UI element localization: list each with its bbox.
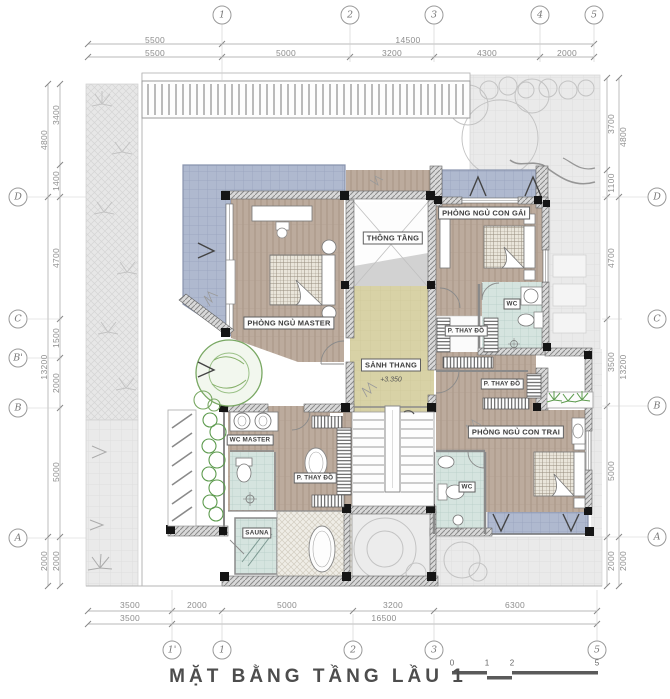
dim: 3700 xyxy=(606,114,616,134)
dim: 3500 xyxy=(606,352,616,372)
dim: 3200 xyxy=(383,600,403,610)
plan-drawing xyxy=(0,0,670,699)
room-label-dress-son: P. THAY ĐỒ xyxy=(481,379,524,390)
room-label-son: PHÒNG NGỦ CON TRAI xyxy=(468,426,564,439)
room-label-dress-daughter: P. THAY ĐỒ xyxy=(445,326,488,337)
dim: 16500 xyxy=(371,613,396,623)
dim: 3500 xyxy=(120,600,140,610)
grid-bubble-top-4: 4 xyxy=(531,6,550,25)
dim: 4800 xyxy=(39,130,49,150)
scale-tick-1: 1 xyxy=(485,659,489,668)
dim: 5000 xyxy=(606,461,616,481)
grid-bubble-right-A: A xyxy=(648,528,667,547)
room-label-wc-master: WC MASTER xyxy=(227,435,274,446)
room-label-sauna: SAUNA xyxy=(242,528,271,539)
courtyard-tree xyxy=(194,340,262,411)
room-label-wc-daughter: WC xyxy=(504,299,521,310)
dim: 5500 xyxy=(145,35,165,45)
room-label-wc-son: WC xyxy=(459,482,476,493)
grid-bubble-left-A: A xyxy=(9,529,28,548)
grid-bubble-left-D: D xyxy=(9,188,28,207)
dim: 2000 xyxy=(51,373,61,393)
sauna-floor xyxy=(235,518,277,574)
dim: 2000 xyxy=(51,551,61,571)
room-label-hall: SẢNH THANG xyxy=(361,359,421,372)
dim: 13200 xyxy=(618,354,628,379)
dim: 2000 xyxy=(187,600,207,610)
grid-bubble-bottom-5: 5 xyxy=(588,641,607,660)
grid-bubble-left-C: C xyxy=(9,310,28,329)
room-label-daughter: PHÒNG NGỦ CON GÁI xyxy=(438,207,530,220)
grid-bubble-top-2: 2 xyxy=(341,6,360,25)
dim: 14500 xyxy=(395,35,420,45)
louver-screen xyxy=(168,410,196,526)
scale-tick-0: 0 xyxy=(450,659,454,668)
dim: 5000 xyxy=(51,462,61,482)
grid-bubble-bottom-3: 3 xyxy=(425,641,444,660)
daughter-balcony xyxy=(442,170,536,201)
grid-bubble-right-D: D xyxy=(648,188,667,207)
master-desk xyxy=(252,206,312,221)
daughter-desk xyxy=(440,218,450,268)
grid-bubble-top-1: 1 xyxy=(213,6,232,25)
room-label-dress-master: P. THAY ĐỒ xyxy=(294,473,337,484)
dim: 2000 xyxy=(39,551,49,571)
grid-bubble-bottom-2: 2 xyxy=(344,641,363,660)
dim: 1100 xyxy=(606,173,616,192)
drawing-title: MẶT BẰNG TẦNG LẦU 1 xyxy=(169,666,467,688)
room-label-void: THÔNG TẦNG xyxy=(363,232,423,245)
scale-bar xyxy=(452,671,598,680)
right-planter xyxy=(547,391,593,408)
grid-bubble-top-5: 5 xyxy=(585,6,604,25)
room-label-master: PHÒNG NGỦ MASTER xyxy=(243,317,334,330)
dim: 1500 xyxy=(51,328,61,348)
dim: 5500 xyxy=(145,48,165,58)
dim: 2000 xyxy=(606,551,616,571)
dim: 13200 xyxy=(39,354,49,379)
scale-tick-5: 5 xyxy=(595,659,599,668)
grid-bubble-right-C: C xyxy=(648,310,667,329)
grid-bubble-top-3: 3 xyxy=(425,6,444,25)
grid-bubble-left-Bp: B' xyxy=(9,349,28,368)
hedge-plants xyxy=(202,413,226,521)
dim: 5000 xyxy=(277,600,297,610)
floor-plan-sheet: 5500 14500 5500 5000 3200 4300 2000 3500… xyxy=(0,0,670,699)
scale-tick-2: 2 xyxy=(510,659,514,668)
grid-bubble-bottom-1: 1 xyxy=(213,641,232,660)
staircase xyxy=(352,406,434,506)
grid-bubble-left-B: B xyxy=(9,399,28,418)
dim: 2000 xyxy=(557,48,577,58)
dim: 3200 xyxy=(382,48,402,58)
dim: 5000 xyxy=(276,48,296,58)
son-balcony xyxy=(488,512,588,534)
level-annotation: +3.350 xyxy=(380,377,402,384)
dim: 4800 xyxy=(618,127,628,147)
grid-bubble-bottom-1p: 1' xyxy=(163,641,182,660)
grid-bubble-right-B: B xyxy=(648,397,667,416)
dim: 6300 xyxy=(505,600,525,610)
dim: 3400 xyxy=(51,105,61,125)
dim: 2000 xyxy=(618,551,628,571)
dim: 4700 xyxy=(51,248,61,268)
dim: 3500 xyxy=(120,613,140,623)
stair-hall-floor xyxy=(350,286,434,412)
pergola xyxy=(142,73,470,118)
dim: 1400 xyxy=(51,171,61,191)
dim: 4300 xyxy=(477,48,497,58)
dim: 4700 xyxy=(606,248,616,268)
